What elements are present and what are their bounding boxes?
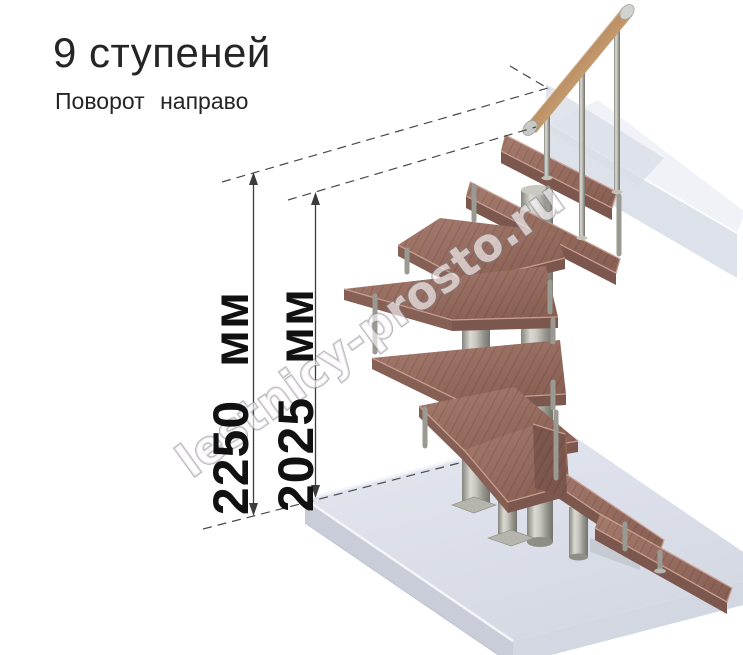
- dimension-line-2250: [249, 172, 258, 516]
- product-diagram-page: lestnicy-prosto.ru 9 ступеней Поворот на…: [0, 0, 743, 655]
- page-subtitle: Поворот направо: [55, 88, 248, 115]
- rod-base-flange: [654, 569, 666, 574]
- tread-side-panel: [533, 424, 567, 499]
- top-extension-lines: [222, 66, 549, 200]
- page-title: 9 ступеней: [53, 30, 271, 76]
